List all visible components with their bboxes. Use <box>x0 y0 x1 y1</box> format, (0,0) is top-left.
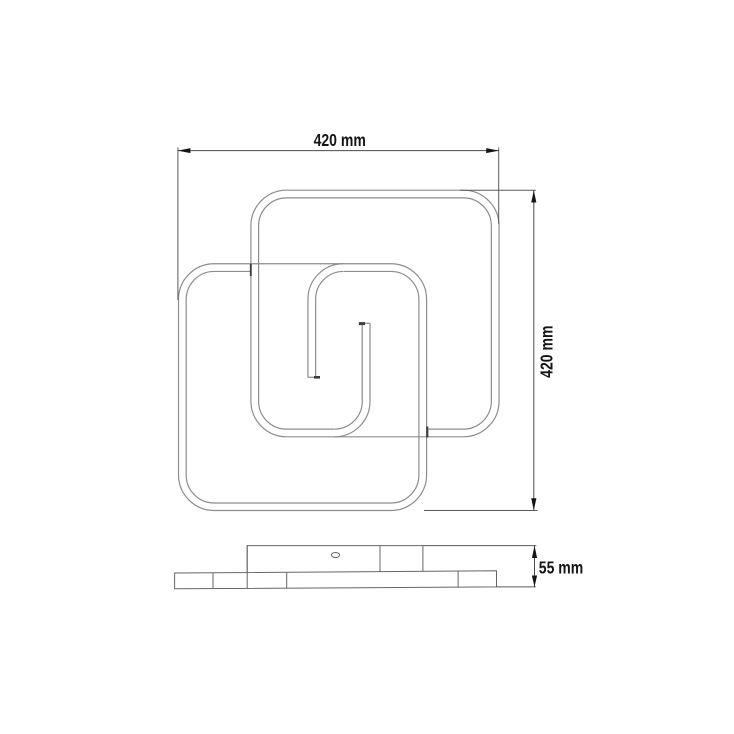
svg-text:55 mm: 55 mm <box>539 558 583 578</box>
svg-text:420 mm: 420 mm <box>537 326 557 378</box>
svg-text:420 mm: 420 mm <box>314 131 366 151</box>
